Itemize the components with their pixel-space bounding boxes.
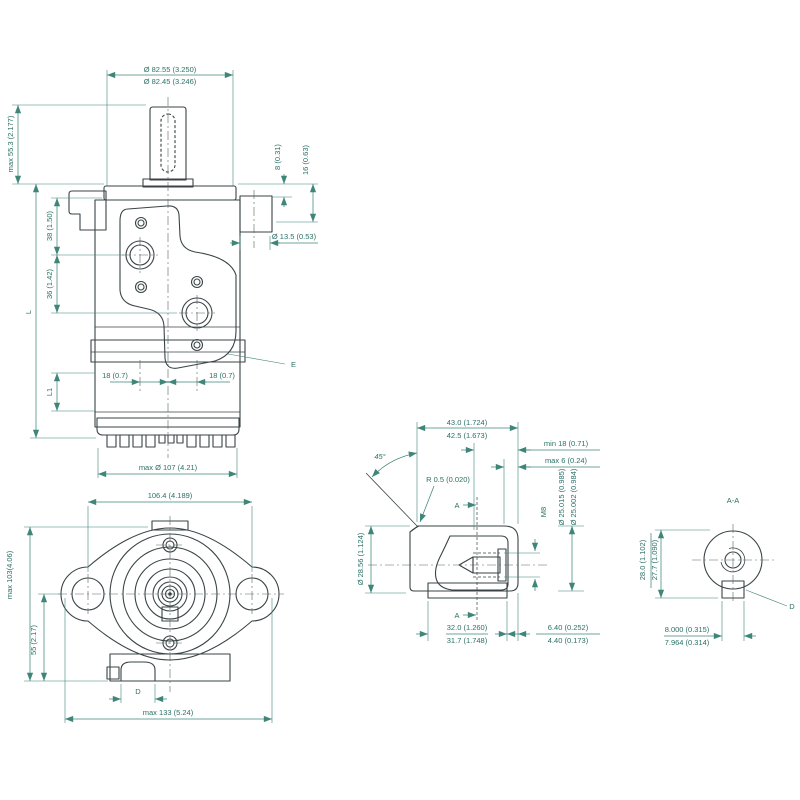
dim-aa-height-upper: 28.0 (1.102) <box>638 539 647 580</box>
side-view: Ø 82.55 (3.250) Ø 82.45 (3.246) max 55.3… <box>6 65 318 478</box>
section-label-a-bottom: A <box>454 611 459 620</box>
technical-drawing-canvas: Ø 82.55 (3.250) Ø 82.45 (3.246) max 55.3… <box>0 0 800 800</box>
side-port-boss <box>240 196 272 232</box>
chamfer-line <box>366 473 418 527</box>
dim-end-upper: 6.40 (0.252) <box>548 623 589 632</box>
dim-shaft-max-height: max 55.3 (2.177) <box>6 115 15 172</box>
dim-port-right: 18 (0.7) <box>209 371 235 380</box>
dim-key-width-upper: 8.000 (0.315) <box>665 625 710 634</box>
dim-length-L1: L1 <box>45 388 54 396</box>
port-face-pad <box>120 206 236 368</box>
dim-thread: M8 <box>539 507 548 517</box>
end-cap-teeth <box>107 435 235 447</box>
dim-end-lower: 4.40 (0.173) <box>548 636 589 645</box>
dim-pilot-dia-lower: Ø 82.45 (3.246) <box>144 77 197 86</box>
dim-len-lower: 42.5 (1.673) <box>447 431 488 440</box>
label-e: E <box>291 360 296 369</box>
dim-pilot-dia-upper: Ø 82.55 (3.250) <box>144 65 197 74</box>
dim-min-depth: min 18 (0.71) <box>544 439 589 448</box>
port-face-bolt-holes <box>136 218 203 351</box>
label-d-aa: D <box>789 602 795 611</box>
dim-port-dia: Ø 13.5 (0.53) <box>272 232 317 241</box>
dim-max-width: max 133 (5.24) <box>143 708 194 717</box>
dim-shaft-dia-upper: Ø 25.015 (0.985) <box>557 468 566 525</box>
hydraulic-motor-dimensional-drawing: Ø 82.55 (3.250) Ø 82.45 (3.246) max 55.3… <box>0 0 800 800</box>
mounting-flange-plate <box>104 186 236 200</box>
section-aa-view: A-A 28.0 (1.102) 27.7 (1.090) 8.000 (0.3… <box>638 496 795 647</box>
front-view: 106.4 (4.189) max 103(4.06) 55 (2.17) D … <box>5 491 284 723</box>
dim-8: 8 (0.31) <box>273 144 282 170</box>
dim-38: 38 (1.50) <box>45 210 54 241</box>
dim-chamfer-angle: 45° <box>374 452 385 461</box>
shaft-bore-cavity <box>436 536 509 590</box>
dim-key-lower: 31.7 (1.748) <box>447 636 488 645</box>
shaft-section-view: 43.0 (1.724) 42.5 (1.673) min 18 (0.71) … <box>356 418 600 645</box>
dim-36: 36 (1.42) <box>45 268 54 299</box>
dim-bolt-spacing: 106.4 (4.189) <box>148 491 193 500</box>
dim-max-depth: max 6 (0.24) <box>545 456 588 465</box>
drain-notch <box>121 662 155 681</box>
section-aa-title: A-A <box>727 496 740 505</box>
dim-shaft-dia-lower: Ø 25.002 (0.984) <box>569 468 578 525</box>
dim-key-upper: 32.0 (1.260) <box>447 623 488 632</box>
left-flange-wing <box>69 191 106 230</box>
dim-16: 16 (0.63) <box>301 144 310 175</box>
dim-port-left: 18 (0.7) <box>102 371 128 380</box>
dim-max-dia: max Ø 107 (4.21) <box>139 463 198 472</box>
dim-len-upper: 43.0 (1.724) <box>447 418 488 427</box>
dim-aa-height-lower: 27.7 (1.090) <box>650 539 659 580</box>
dim-front-max-height: max 103(4.06) <box>5 550 14 599</box>
dim-pilot-dia-section: Ø 28.56 (1.124) <box>356 532 365 585</box>
dim-key-width-lower: 7.964 (0.314) <box>665 638 710 647</box>
label-d-front: D <box>135 687 141 696</box>
bottom-boss-square <box>107 667 119 679</box>
dim-length-L: L <box>24 310 33 314</box>
dim-55: 55 (2.17) <box>29 624 38 655</box>
section-label-a-top: A <box>454 501 459 510</box>
dim-radius: R 0.5 (0.020) <box>426 475 470 484</box>
motor-body <box>95 200 240 427</box>
